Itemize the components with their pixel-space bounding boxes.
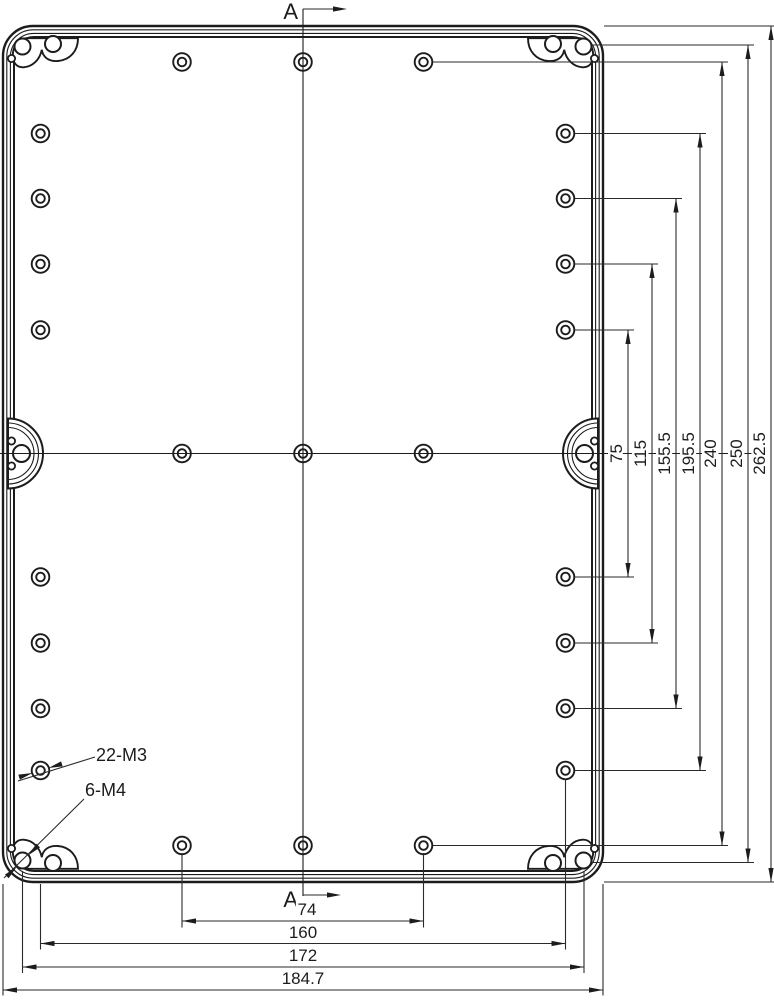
boss-hole-inner — [36, 129, 45, 138]
pilot-hole — [591, 462, 598, 469]
dim-text: 240 — [701, 439, 720, 467]
boss-hole-inner — [419, 58, 428, 67]
arrowhead — [552, 941, 566, 946]
section-label: A — [283, 887, 298, 912]
corner-screw-hole — [576, 853, 592, 869]
arrowhead — [625, 330, 630, 344]
corner-screw-hole — [576, 39, 592, 55]
section-marker-top: A — [283, 0, 347, 24]
dim-text: 75 — [607, 444, 626, 463]
boss-hole-inner — [36, 326, 45, 335]
boss-hole-inner — [561, 573, 570, 582]
boss-hole-inner — [36, 260, 45, 269]
arrowhead — [182, 918, 196, 923]
arrowhead — [625, 563, 630, 577]
arrowhead — [23, 964, 37, 969]
arrowhead — [697, 134, 702, 148]
arrowhead — [3, 987, 17, 992]
leader-line — [18, 757, 95, 781]
dim-text: 74 — [298, 900, 317, 919]
boss-hole-inner — [36, 573, 45, 582]
boss-hole-inner — [178, 58, 187, 67]
arrowhead — [745, 849, 750, 863]
section-label: A — [283, 0, 298, 24]
pilot-hole — [591, 55, 598, 62]
dim-text: 172 — [289, 946, 317, 965]
dim-right-195.5: 195.5 — [679, 134, 703, 771]
arrowhead — [697, 757, 702, 771]
boss-hole-inner — [36, 194, 45, 203]
boss-hole-inner — [36, 704, 45, 713]
boss-hole-inner — [561, 194, 570, 203]
arrowhead — [673, 199, 678, 213]
technical-drawing: A A 74 160 172 184.7 — [0, 0, 774, 1000]
section-arrow-icon — [327, 892, 341, 897]
arrowhead — [570, 964, 584, 969]
corner-screw-hole — [45, 36, 61, 52]
boss-hole-inner — [36, 639, 45, 648]
dim-text: 115 — [631, 440, 650, 467]
arrowhead — [719, 832, 724, 846]
boss-hole-inner — [561, 260, 570, 269]
dim-text: 184.7 — [282, 969, 325, 988]
callout-text-bosses: 22-M3 — [96, 745, 147, 765]
boss-hole-inner — [178, 841, 187, 850]
drawing-canvas: A A 74 160 172 184.7 — [0, 0, 774, 1000]
pilot-hole — [8, 55, 15, 62]
dim-right-262.5: 262.5 — [750, 26, 774, 882]
arrowhead — [41, 941, 55, 946]
pilot-hole — [8, 462, 15, 469]
arrowhead — [719, 62, 724, 76]
dim-text: 155.5 — [655, 432, 674, 475]
arrowhead — [589, 987, 603, 992]
pilot-hole — [8, 437, 15, 444]
boss-hole-inner — [561, 326, 570, 335]
boss-hole-inner — [561, 129, 570, 138]
corner-screw-hole — [545, 36, 561, 52]
arrowhead — [768, 868, 773, 882]
arrowhead — [768, 26, 773, 40]
arrowhead — [649, 629, 654, 643]
dim-text: 195.5 — [679, 432, 698, 475]
arrowhead — [649, 264, 654, 278]
boss-hole-inner — [561, 766, 570, 775]
dim-text: 250 — [727, 439, 746, 467]
callout-text-screws: 6-M4 — [85, 780, 126, 800]
arrowhead — [673, 695, 678, 709]
boss-hole-inner — [561, 639, 570, 648]
pilot-hole — [8, 845, 15, 852]
dim-text: 262.5 — [750, 432, 769, 475]
corner-screw-hole — [15, 39, 31, 55]
arrowhead — [410, 918, 424, 923]
corner-screw-hole — [545, 855, 561, 871]
section-arrow-icon — [333, 6, 347, 11]
pilot-hole — [591, 437, 598, 444]
boss-hole-inner — [419, 841, 428, 850]
arrowhead — [745, 45, 750, 59]
corner-screw-hole — [45, 855, 61, 871]
boss-hole-inner — [561, 704, 570, 713]
dim-text: 160 — [289, 923, 317, 942]
